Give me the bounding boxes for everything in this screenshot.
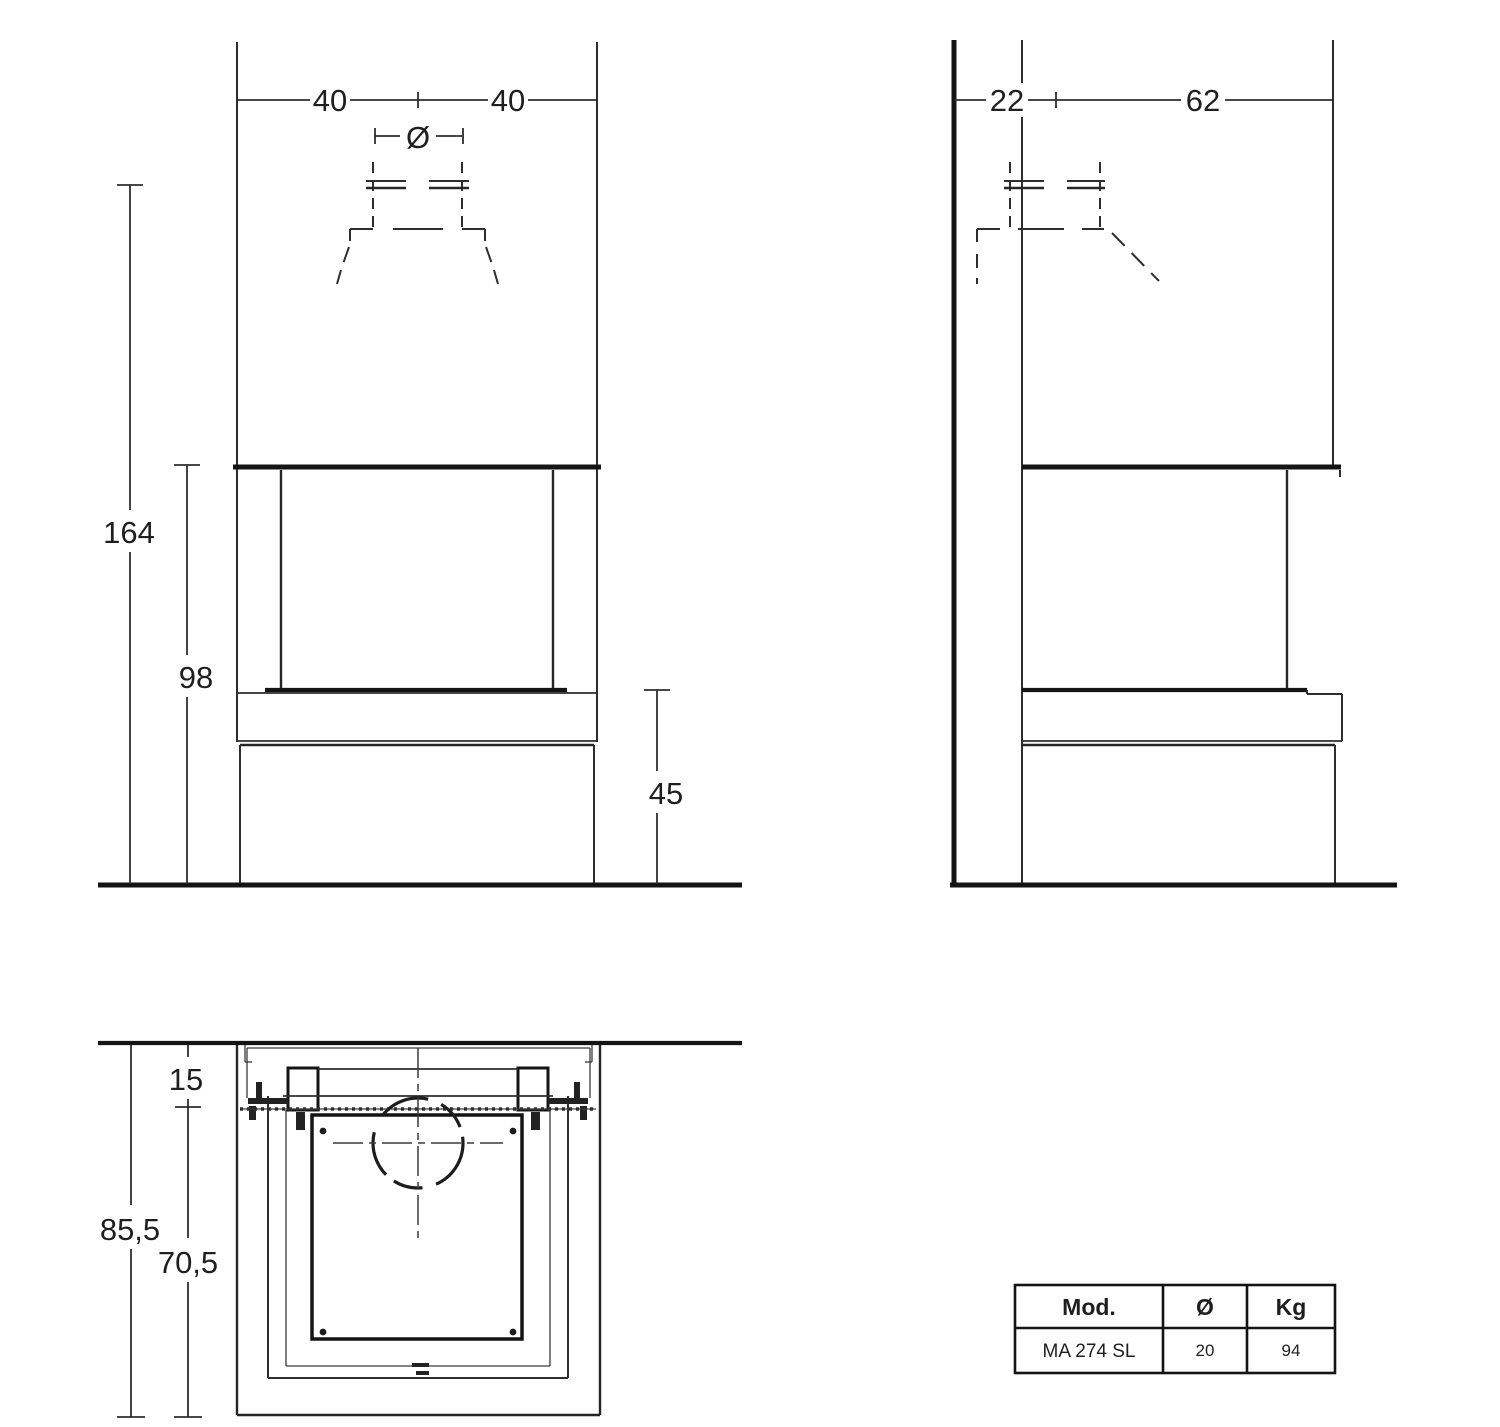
plan-view: 15 85,5 70,5 [98, 1043, 742, 1417]
plan-firebox-body [312, 1115, 522, 1339]
front-view: 40 40 Ø 164 98 [98, 42, 742, 885]
front-dim-98: 98 [179, 660, 213, 695]
front-flue-diameter-dimension: Ø [375, 119, 463, 155]
technical-drawing-page: 40 40 Ø 164 98 [0, 0, 1500, 1427]
front-outline [98, 42, 742, 885]
front-flue-stub [337, 162, 498, 284]
fireplace-technical-drawing: 40 40 Ø 164 98 [0, 0, 1500, 1427]
spec-value-diameter: 20 [1196, 1341, 1215, 1360]
front-dim-40-left: 40 [313, 83, 347, 118]
spec-value-model: MA 274 SL [1043, 1341, 1136, 1362]
spec-header-weight: Kg [1276, 1294, 1307, 1320]
side-flue-stub [977, 162, 1159, 284]
plan-gap-dimension: 15 [164, 1045, 208, 1417]
plan-dim-85-5: 85,5 [100, 1212, 160, 1247]
plan-body-depth-dimension: 70,5 [156, 1238, 220, 1282]
plan-dim-15: 15 [169, 1062, 203, 1097]
front-dim-40-right: 40 [491, 83, 525, 118]
spec-table: Mod. Ø Kg MA 274 SL 20 94 [1015, 1285, 1335, 1373]
front-bench-height-dimension: 45 [642, 690, 690, 884]
plan-dim-70-5: 70,5 [158, 1245, 218, 1280]
side-view: 22 62 [950, 40, 1397, 885]
side-dim-22: 22 [990, 83, 1024, 118]
front-total-height-dimension: 164 [102, 185, 158, 884]
spec-header-model: Mod. [1062, 1294, 1116, 1320]
front-opening-height-dimension: 98 [173, 465, 219, 884]
spec-header-diameter: Ø [1196, 1294, 1214, 1320]
spec-value-weight: 94 [1282, 1341, 1301, 1360]
front-dim-diameter-symbol: Ø [406, 120, 430, 155]
side-outline [950, 40, 1397, 885]
side-dim-62: 62 [1186, 83, 1220, 118]
front-dim-45: 45 [649, 776, 683, 811]
front-dim-164: 164 [103, 515, 155, 550]
side-depth-dimension: 22 62 [954, 83, 1333, 118]
front-width-dimension: 40 40 [237, 83, 597, 118]
plan-flue [333, 1048, 503, 1238]
plan-total-depth-dimension: 85,5 [100, 1045, 162, 1417]
